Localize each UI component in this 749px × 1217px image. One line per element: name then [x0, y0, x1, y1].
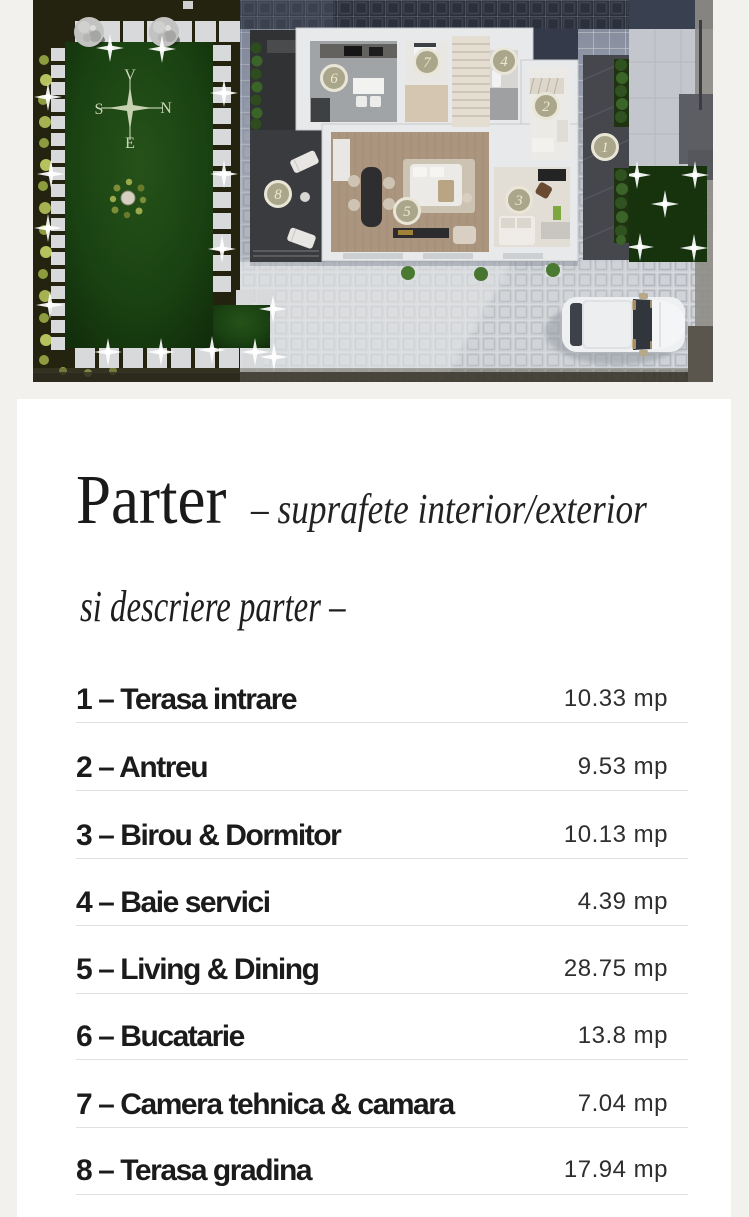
- svg-text:4: 4: [500, 54, 508, 70]
- svg-text:2: 2: [542, 99, 550, 115]
- svg-text:3: 3: [514, 193, 523, 209]
- svg-text:E: E: [125, 135, 135, 152]
- svg-text:1: 1: [601, 140, 609, 156]
- svg-text:8: 8: [274, 187, 282, 203]
- svg-text:5: 5: [403, 204, 411, 220]
- svg-text:6: 6: [330, 71, 338, 87]
- svg-text:V: V: [124, 67, 136, 84]
- svg-text:N: N: [160, 100, 172, 117]
- svg-text:S: S: [95, 101, 104, 118]
